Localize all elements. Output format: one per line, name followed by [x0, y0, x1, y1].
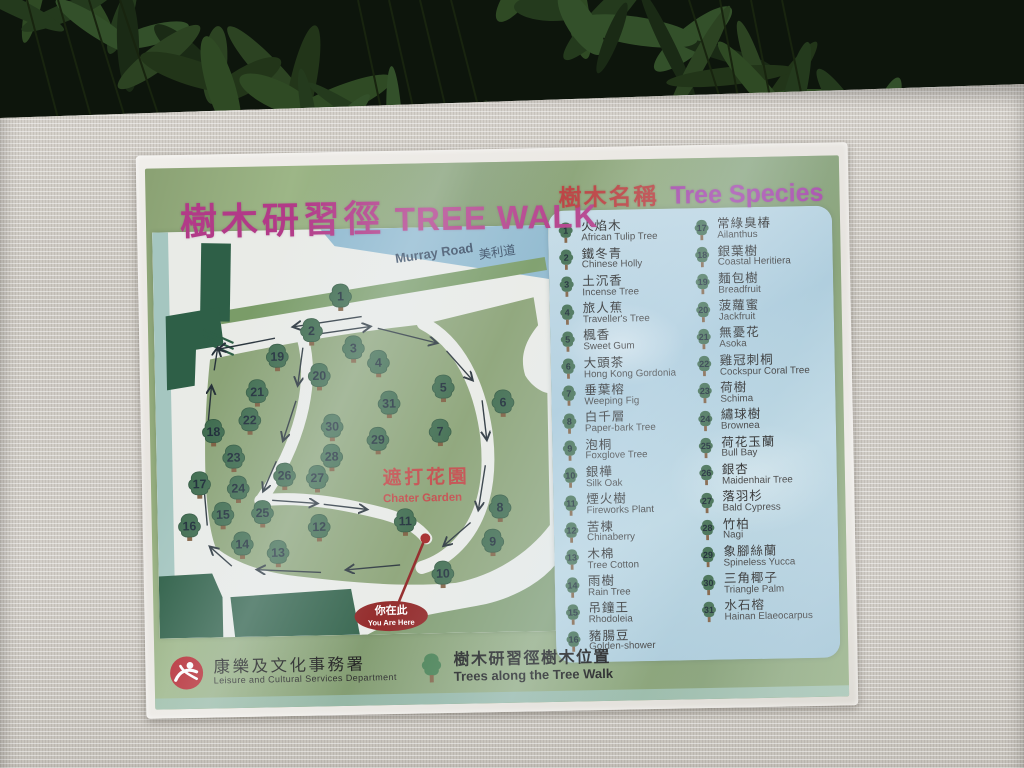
title-chinese: 樹木研習徑 [180, 198, 386, 243]
legend-tree-icon [418, 652, 445, 684]
svg-text:10: 10 [436, 566, 450, 580]
tree-icon: 5 [558, 329, 577, 353]
lcsd-logo [168, 655, 205, 692]
tree-walk-legend: 樹木研習徑樹木位置 Trees along the Tree Walk [453, 649, 613, 685]
tree-walk-poster: 樹木研習徑TREE WALK 樹木名稱Tree Species [145, 155, 849, 709]
tree-icon: 31 [699, 600, 718, 624]
species-names: 常綠臭椿 Ailanthus [717, 217, 771, 241]
species-names: 鐵冬青 Chinese Holly [582, 247, 643, 271]
species-names: 水石榕 Hainan Elaeocarpus [724, 598, 813, 622]
tree-icon: 26 [697, 463, 716, 487]
svg-text:26: 26 [278, 468, 292, 482]
species-name-en: Nagi [723, 530, 750, 541]
tree-icon: 27 [697, 490, 716, 514]
svg-text:22: 22 [243, 413, 257, 427]
species-list-item: 26 銀杏 Maidenhair Tree [697, 459, 833, 489]
species-name-en: Breadfruit [718, 285, 761, 296]
svg-text:9: 9 [489, 534, 496, 548]
svg-text:24: 24 [231, 481, 245, 495]
species-name-en: Bull Bay [721, 448, 775, 459]
species-number: 27 [697, 495, 716, 505]
species-name-en: Rain Tree [588, 587, 631, 598]
species-list-item: 15 吊鐘王 Rhodoleia [563, 598, 699, 628]
svg-text:20: 20 [312, 369, 326, 383]
species-names: 荷樹 Schima [720, 381, 753, 404]
species-names: 麵包樹 Breadfruit [718, 272, 761, 296]
species-number: 11 [561, 498, 580, 508]
species-names: 荷花玉蘭 Bull Bay [721, 435, 775, 459]
species-number: 4 [558, 307, 577, 317]
species-number: 30 [699, 577, 718, 587]
species-name-en: Maidenhair Tree [722, 475, 793, 486]
tree-icon: 11 [561, 493, 580, 517]
species-name-en: Schima [720, 394, 753, 405]
tree-icon: 12 [562, 520, 581, 544]
species-list-item: 21 無憂花 Asoka [694, 323, 830, 353]
species-names: 菠蘿蜜 Jackfruit [719, 299, 760, 323]
svg-text:5: 5 [440, 380, 447, 394]
svg-text:21: 21 [250, 385, 264, 399]
species-name-en: Hong Kong Gordonia [584, 368, 676, 380]
tree-icon: 3 [557, 275, 576, 299]
species-name-en: Sweet Gum [583, 342, 634, 353]
chater-garden-label-en: Chater Garden [383, 492, 462, 506]
species-number: 6 [559, 362, 578, 372]
species-names: 落羽杉 Bald Cypress [722, 490, 781, 514]
species-header-english: Tree Species [670, 179, 823, 210]
tree-icon: 25 [696, 436, 715, 460]
legend-row: 康樂及文化事務署 Leisure and Cultural Services D… [168, 638, 613, 701]
svg-text:23: 23 [227, 450, 241, 464]
svg-text:30: 30 [325, 419, 339, 433]
tree-icon: 7 [559, 384, 578, 408]
species-number: 21 [694, 332, 713, 342]
species-number: 25 [696, 441, 715, 451]
species-number: 28 [698, 523, 717, 533]
species-name-en: Foxglove Tree [585, 451, 647, 462]
species-names: 苦楝 Chinaberry [587, 520, 635, 544]
species-names: 象腳絲蘭 Spineless Yucca [723, 544, 795, 568]
svg-text:6: 6 [499, 395, 506, 409]
species-name-en: Rhodoleia [589, 615, 633, 626]
species-list-item: 24 繡球樹 Brownea [696, 405, 832, 435]
species-number: 12 [562, 525, 581, 535]
tree-icon: 30 [699, 572, 718, 596]
garden-map-drawing: Murray Road 美利道 遮打花園 Chater Garden 1 2 3 [152, 225, 556, 639]
species-number: 2 [557, 252, 576, 262]
tree-icon: 23 [695, 381, 714, 405]
svg-text:18: 18 [206, 425, 220, 439]
species-number: 13 [562, 553, 581, 563]
species-list-item: 8 白千層 Paper-bark Tree [560, 407, 696, 437]
species-name-en: Chinese Holly [582, 260, 643, 271]
species-number: 14 [563, 580, 582, 590]
species-list-item: 17 常綠臭椿 Ailanthus [692, 214, 828, 244]
species-list-item: 28 竹柏 Nagi [698, 514, 834, 544]
tree-walk-sign: 樹木研習徑TREE WALK 樹木名稱Tree Species [136, 142, 859, 719]
tree-icon: 9 [560, 438, 579, 462]
species-column-left: 1 火焰木 African Tulip Tree 2 鐵冬青 Chinese H… [556, 216, 700, 657]
species-name-en: Coastal Heritiera [718, 257, 791, 268]
you-are-here-zh: 你在此 [374, 603, 408, 618]
species-name-en: Cockspur Coral Tree [720, 366, 810, 378]
species-names: 大頭茶 Hong Kong Gordonia [584, 355, 676, 379]
svg-text:12: 12 [312, 520, 326, 534]
species-names: 三角椰子 Triangle Palm [724, 572, 785, 596]
species-names: 土沉香 Incense Tree [582, 274, 639, 298]
species-column-right: 17 常綠臭椿 Ailanthus 18 銀葉樹 Coastal Heritie… [692, 214, 836, 655]
tree-icon: 22 [695, 354, 714, 378]
species-list-item: 9 泡桐 Foxglove Tree [560, 435, 696, 465]
species-names: 雞冠刺桐 Cockspur Coral Tree [720, 353, 810, 377]
species-list-item: 10 銀樺 Silk Oak [561, 462, 697, 492]
species-name-en: Paper-bark Tree [585, 423, 656, 434]
tree-icon: 15 [563, 602, 582, 626]
species-name-en: Ailanthus [717, 230, 771, 241]
species-list-item: 4 旅人蕉 Traveller's Tree [558, 298, 694, 328]
species-name-en: Bald Cypress [722, 503, 780, 514]
tree-icon: 6 [559, 357, 578, 381]
tree-icon: 28 [698, 518, 717, 542]
poster-title: 樹木研習徑TREE WALK [179, 184, 598, 246]
species-list-item: 30 三角椰子 Triangle Palm [699, 568, 835, 598]
species-names: 楓香 Sweet Gum [583, 329, 635, 353]
species-list-item: 5 楓香 Sweet Gum [558, 325, 694, 355]
tree-walk-legend-en: Trees along the Tree Walk [454, 666, 613, 684]
species-number: 15 [563, 607, 582, 617]
tree-icon: 21 [694, 327, 713, 351]
species-header-chinese: 樹木名稱 [558, 183, 658, 211]
species-name-en: Jackfruit [719, 312, 760, 323]
department-name-en: Leisure and Cultural Services Department [214, 673, 397, 686]
tree-icon: 17 [692, 217, 711, 241]
species-name-en: Traveller's Tree [583, 314, 650, 325]
tree-icon: 20 [694, 299, 713, 323]
svg-text:3: 3 [350, 341, 357, 355]
species-list-item: 13 木棉 Tree Cotton [562, 544, 698, 574]
department-name: 康樂及文化事務署 Leisure and Cultural Services D… [213, 655, 397, 687]
tree-icon: 4 [558, 302, 577, 326]
species-names: 竹柏 Nagi [723, 518, 750, 541]
species-number: 8 [560, 416, 579, 426]
species-names: 吊鐘王 Rhodoleia [588, 602, 633, 626]
species-name-en: Silk Oak [586, 478, 623, 489]
species-names: 煙火樹 Fireworks Plant [586, 492, 654, 516]
species-names: 雨樹 Rain Tree [588, 575, 631, 599]
species-number: 18 [693, 250, 712, 260]
species-names: 銀葉樹 Coastal Heritiera [717, 244, 790, 268]
species-list-item: 7 垂葉榕 Weeping Fig [559, 380, 695, 410]
species-number: 5 [558, 334, 577, 344]
species-list-panel: 1 火焰木 African Tulip Tree 2 鐵冬青 Chinese H… [548, 206, 841, 663]
svg-text:2: 2 [308, 324, 315, 338]
species-number: 3 [557, 280, 576, 290]
svg-text:14: 14 [235, 537, 249, 551]
species-list-item: 19 麵包樹 Breadfruit [693, 268, 829, 298]
tree-icon: 2 [557, 247, 576, 271]
species-list-item: 27 落羽杉 Bald Cypress [697, 487, 833, 517]
garden-map: Murray Road 美利道 遮打花園 Chater Garden 1 2 3 [152, 225, 556, 639]
species-names: 銀樺 Silk Oak [586, 466, 623, 489]
species-number: 10 [561, 471, 580, 481]
species-list-item: 12 苦楝 Chinaberry [562, 516, 698, 546]
species-name-en: Asoka [719, 339, 760, 350]
species-list-item: 29 象腳絲蘭 Spineless Yucca [698, 541, 834, 571]
svg-text:11: 11 [399, 514, 412, 528]
species-list-item: 20 菠蘿蜜 Jackfruit [693, 295, 829, 325]
tree-icon: 8 [560, 411, 579, 435]
tree-icon: 18 [692, 245, 711, 269]
svg-text:8: 8 [496, 500, 503, 514]
svg-text:1: 1 [337, 289, 344, 303]
species-names: 繡球樹 Brownea [721, 408, 762, 432]
species-list-item: 31 水石榕 Hainan Elaeocarpus [699, 596, 835, 626]
species-names: 旅人蕉 Traveller's Tree [583, 301, 650, 325]
svg-text:25: 25 [255, 506, 269, 520]
species-number: 19 [693, 277, 712, 287]
species-name-en: Tree Cotton [588, 560, 640, 571]
species-list-header: 樹木名稱Tree Species [558, 174, 823, 213]
species-list-item: 18 銀葉樹 Coastal Heritiera [692, 241, 828, 271]
chater-garden-label-zh: 遮打花園 [382, 464, 470, 489]
species-list-item: 6 大頭茶 Hong Kong Gordonia [559, 353, 695, 383]
species-number: 7 [559, 389, 578, 399]
svg-text:27: 27 [310, 471, 324, 485]
species-names: 泡桐 Foxglove Tree [585, 438, 648, 462]
species-name-en: Triangle Palm [724, 584, 784, 595]
svg-text:19: 19 [270, 350, 284, 364]
species-list-item: 23 荷樹 Schima [695, 377, 831, 407]
tree-icon: 19 [693, 272, 712, 296]
tree-icon: 14 [563, 575, 582, 599]
svg-text:28: 28 [325, 449, 339, 463]
species-name-en: Chinaberry [587, 533, 635, 544]
species-list-item: 25 荷花玉蘭 Bull Bay [696, 432, 832, 462]
species-number: 22 [695, 359, 714, 369]
svg-text:4: 4 [375, 356, 382, 370]
species-list-item: 22 雞冠刺桐 Cockspur Coral Tree [695, 350, 831, 380]
species-number: 17 [692, 222, 711, 232]
tree-icon: 29 [698, 545, 717, 569]
species-names: 無憂花 Asoka [719, 326, 760, 350]
species-number: 26 [697, 468, 716, 478]
species-name-en: Brownea [721, 421, 762, 432]
species-number: 23 [695, 386, 714, 396]
svg-text:7: 7 [437, 424, 444, 438]
species-number: 9 [560, 443, 579, 453]
species-names: 木棉 Tree Cotton [587, 547, 639, 571]
species-name-en: Weeping Fig [584, 396, 639, 407]
species-list-item: 14 雨樹 Rain Tree [563, 571, 699, 601]
species-list-item: 2 鐵冬青 Chinese Holly [556, 244, 692, 274]
species-name-en: Fireworks Plant [586, 505, 654, 516]
species-number: 29 [698, 550, 717, 560]
svg-text:31: 31 [382, 396, 396, 410]
species-name-en: Spineless Yucca [723, 557, 795, 568]
species-list-item: 11 煙火樹 Fireworks Plant [561, 489, 697, 519]
species-list-item: 3 土沉香 Incense Tree [557, 271, 693, 301]
svg-text:13: 13 [271, 546, 285, 560]
tree-icon: 24 [696, 409, 715, 433]
species-names: 銀杏 Maidenhair Tree [722, 462, 793, 486]
tree-icon: 13 [562, 548, 581, 572]
you-are-here-en: You Are Here [368, 618, 415, 628]
svg-text:29: 29 [371, 433, 385, 447]
tree-icon: 10 [561, 466, 580, 490]
species-names: 白千層 Paper-bark Tree [585, 410, 656, 434]
species-names: 垂葉榕 Weeping Fig [584, 383, 639, 407]
svg-text:15: 15 [216, 508, 230, 522]
svg-text:16: 16 [182, 519, 196, 533]
species-number: 20 [694, 304, 713, 314]
species-number: 24 [696, 414, 715, 424]
svg-text:17: 17 [193, 477, 207, 491]
species-name-en: Hainan Elaeocarpus [725, 611, 813, 623]
species-name-en: Incense Tree [582, 287, 639, 298]
species-number: 31 [699, 605, 718, 615]
